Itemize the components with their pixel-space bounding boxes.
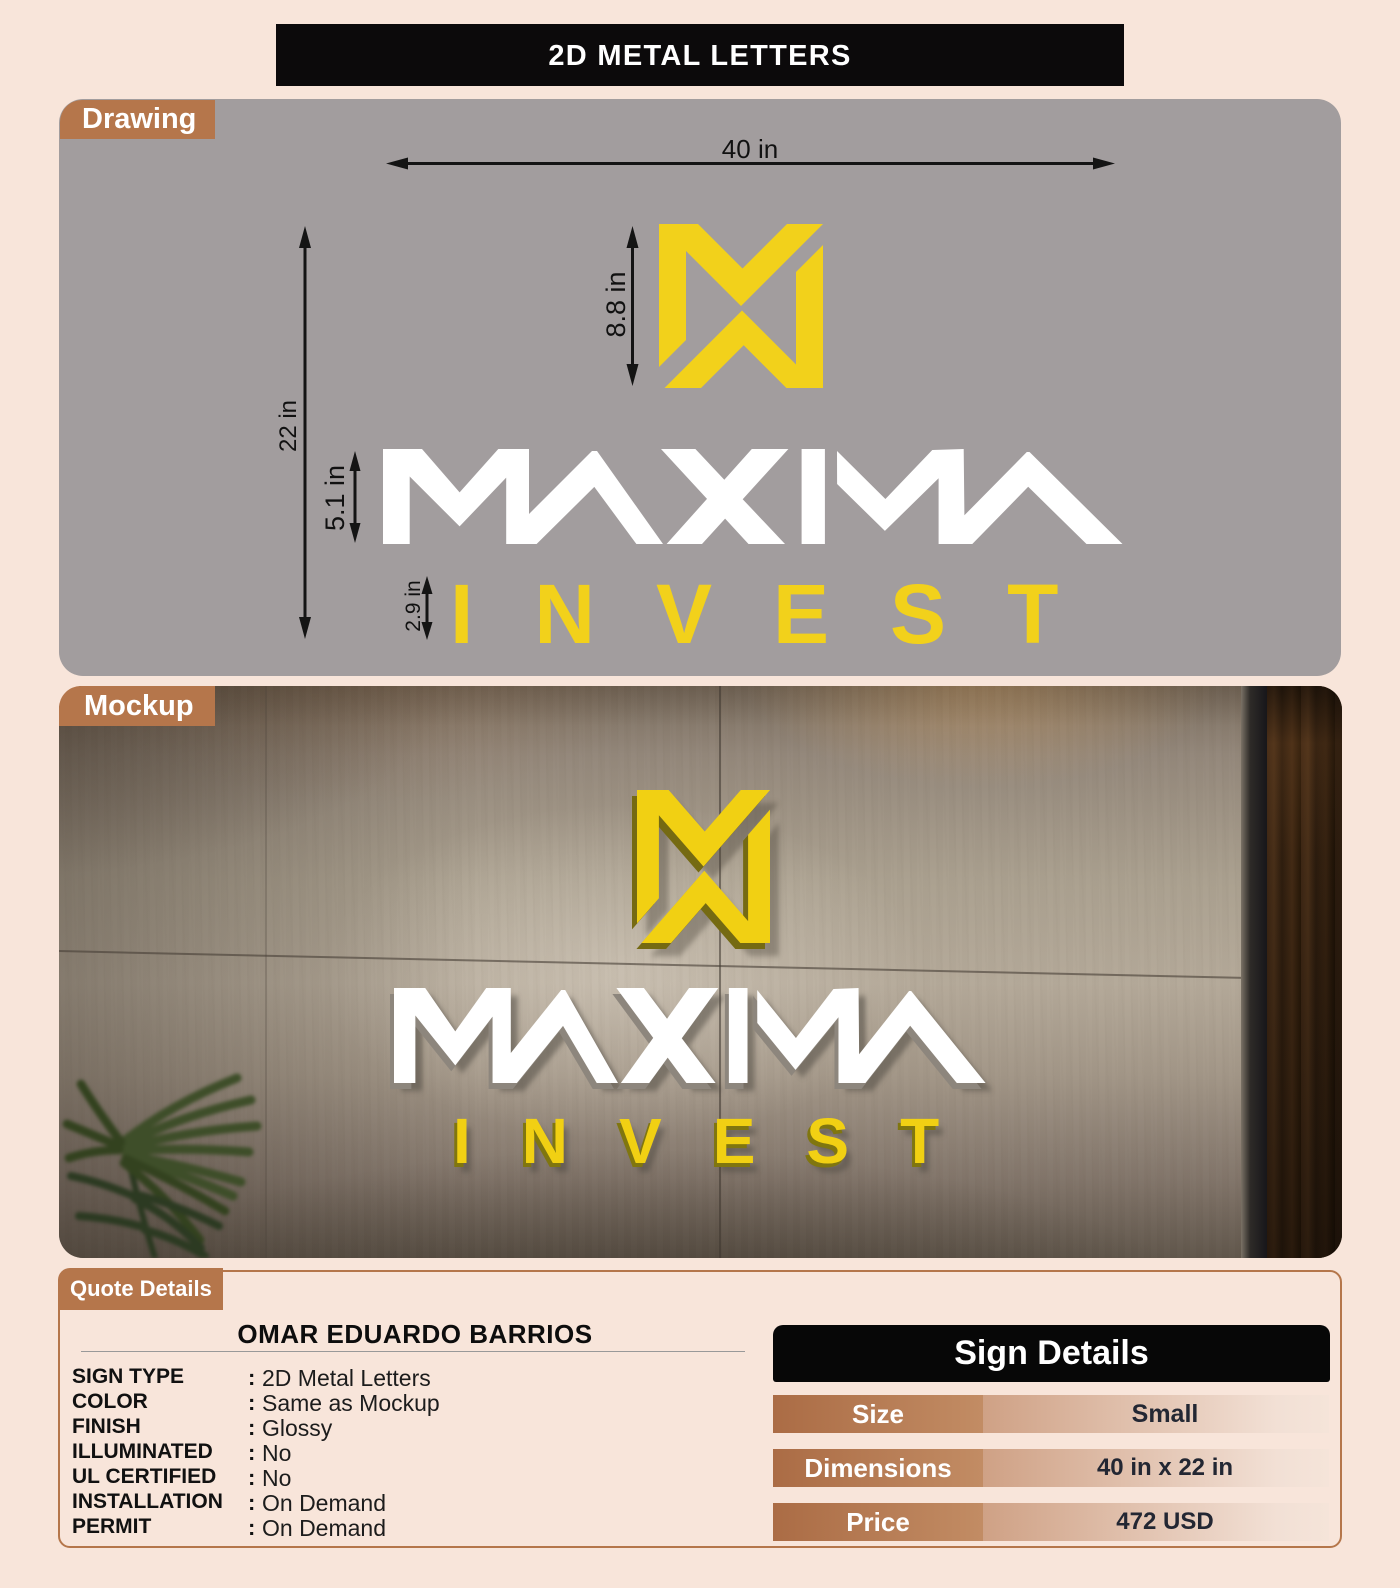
svg-text:40 in: 40 in [722,134,778,164]
svg-text:5.1 in: 5.1 in [320,465,350,531]
svg-text:8.8 in: 8.8 in [601,271,631,337]
svg-text:INVEST: INVEST [453,1105,990,1177]
svg-text:2.9 in: 2.9 in [402,580,425,631]
svg-text:22 in: 22 in [275,400,302,452]
svg-text:INVEST: INVEST [450,567,1119,661]
